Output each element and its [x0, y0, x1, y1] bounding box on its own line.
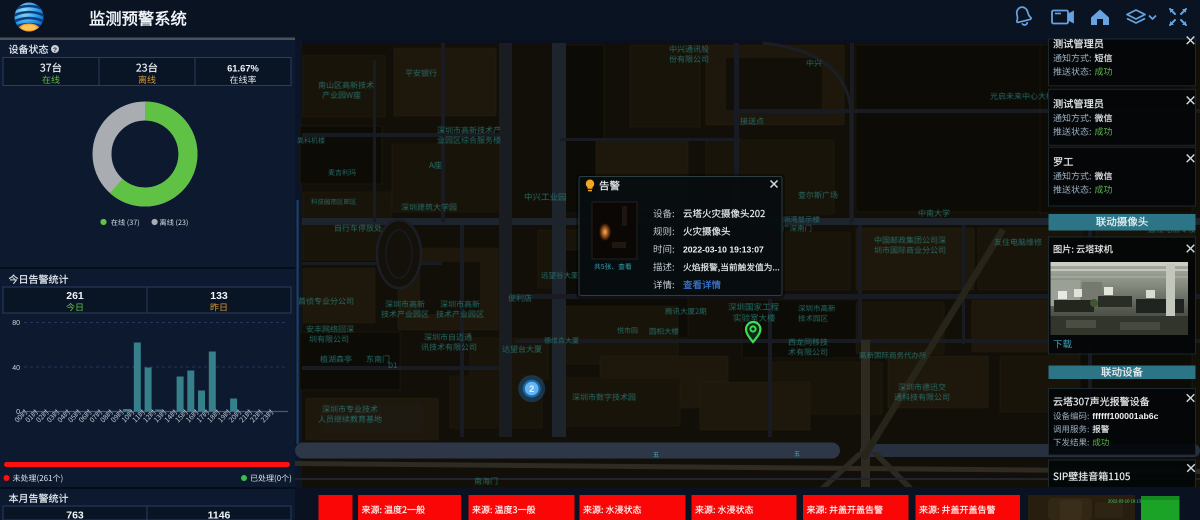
svg-text:61.67%: 61.67% [227, 63, 259, 74]
svg-text:763: 763 [66, 510, 84, 520]
svg-text:2022-03-10 19:13: 2022-03-10 19:13 [1108, 499, 1142, 504]
svg-text:2: 2 [529, 384, 534, 394]
svg-text:40: 40 [12, 365, 20, 372]
svg-text:80: 80 [12, 320, 20, 327]
svg-text:133: 133 [210, 290, 228, 302]
svg-text:?: ? [53, 47, 57, 54]
svg-text:2022-03-10 19:13:07: 2022-03-10 19:13:07 [683, 245, 764, 255]
svg-text:ffffff100001ab6c: ffffff100001ab6c [1092, 411, 1158, 421]
svg-text:261: 261 [66, 290, 84, 302]
svg-text:1146: 1146 [208, 510, 231, 520]
